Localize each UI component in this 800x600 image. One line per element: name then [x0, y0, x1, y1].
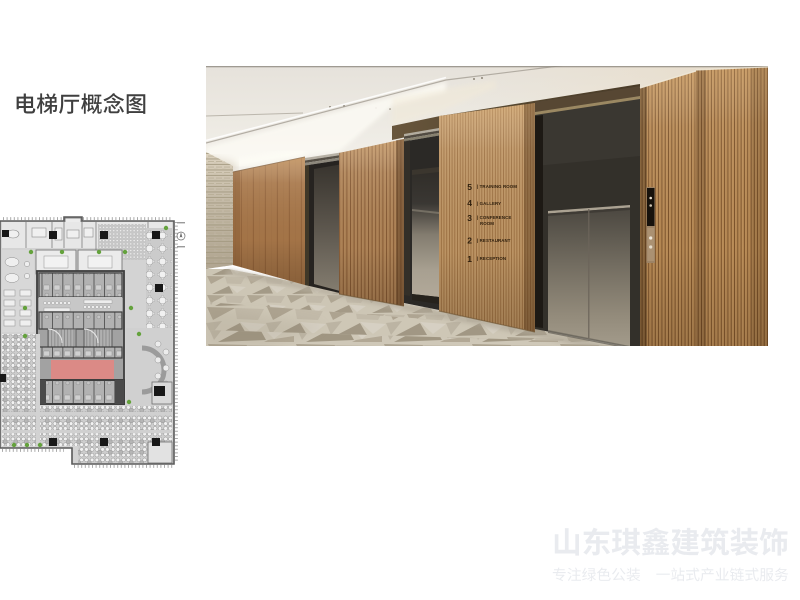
svg-text:| RESTAURANT: | RESTAURANT: [477, 238, 511, 243]
svg-text:2: 2: [467, 236, 472, 246]
svg-text:| GALLERY: | GALLERY: [477, 201, 501, 206]
svg-text:ROOM: ROOM: [480, 221, 494, 226]
svg-text:| TRAINING ROOM: | TRAINING ROOM: [477, 184, 517, 189]
svg-text:| CONFERENCE: | CONFERENCE: [477, 215, 511, 220]
svg-text:3: 3: [467, 213, 472, 223]
svg-text:1: 1: [467, 254, 472, 264]
svg-text:5: 5: [467, 182, 472, 192]
svg-text:| RECEPTION: | RECEPTION: [477, 256, 506, 261]
svg-text:4: 4: [467, 198, 472, 208]
